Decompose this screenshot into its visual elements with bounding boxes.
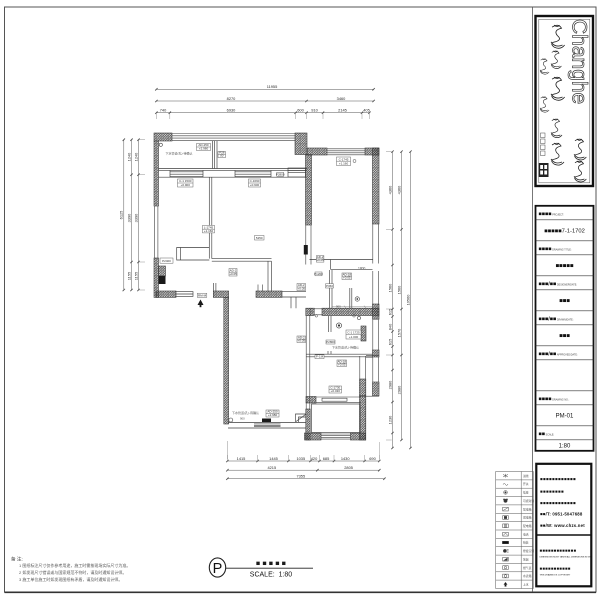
svg-text:P-1M: P-1M [316,355,324,359]
svg-text:2805: 2805 [344,465,353,470]
svg-text:P360: P360 [326,284,333,288]
svg-text:+0.900: +0.900 [250,183,260,187]
svg-text:900: 900 [336,305,341,309]
svg-text:1560: 1560 [396,285,401,294]
svg-text:3390: 3390 [126,213,131,222]
svg-text:615: 615 [387,309,392,316]
svg-text:2145: 2145 [338,108,347,113]
svg-text:■■/W: www.chzs.net: ■■/W: www.chzs.net [540,523,585,528]
svg-text:1560: 1560 [387,283,392,292]
svg-text:下水管道(孔)-待确认: 下水管道(孔)-待确认 [332,345,359,350]
svg-text:910: 910 [311,108,318,113]
svg-text:P2800: P2800 [326,340,335,344]
svg-text:强电箱: 强电箱 [523,507,532,511]
svg-text:3 施工单位施工时如发现图纸有矛盾，请及时通知设计师。: 3 施工单位施工时如发现图纸有矛盾，请及时通知设计师。 [19,576,122,582]
svg-text:SCALE: 1:80: SCALE: 1:80 [250,572,293,579]
svg-text:4215: 4215 [267,465,276,470]
svg-text:1800: 1800 [358,266,366,270]
svg-text:燃气表: 燃气表 [523,566,532,570]
svg-text:PM-01: PM-01 [556,414,574,420]
svg-text:RM-M: RM-M [198,293,207,297]
svg-text:■■■■■■■■■■■: ■■■■■■■■■■■ [540,566,571,571]
svg-text:■■/T: 0951-5047688: ■■/T: 0951-5047688 [540,512,583,517]
svg-text:1155: 1155 [126,272,131,280]
svg-text:1240: 1240 [126,152,131,161]
svg-text:2980: 2980 [387,380,392,389]
svg-text:插座: 插座 [523,491,529,495]
svg-text:1230: 1230 [387,415,392,424]
svg-text:11955: 11955 [267,84,278,89]
svg-text:P2800: P2800 [276,172,285,176]
svg-text:地漏: 地漏 [523,558,529,562]
svg-text:+0.430: +0.430 [331,389,341,393]
svg-text:4360: 4360 [396,185,401,194]
svg-text:配电箱: 配电箱 [523,524,532,528]
svg-text:1445: 1445 [269,456,278,461]
svg-text:690: 690 [369,456,376,461]
svg-text:进线: 进线 [523,474,529,478]
svg-text:+1.000: +1.000 [349,335,359,339]
svg-text:弱电箱: 弱电箱 [523,516,532,520]
svg-text:+0.05: +0.05 [338,363,346,367]
svg-text:1570: 1570 [396,328,401,337]
svg-text:+2.980: +2.980 [268,413,278,417]
svg-text:■■■■■: ■■■■■ [555,264,573,270]
svg-text:1240: 1240 [133,152,138,161]
svg-text:■■■: ■■■ [559,299,570,305]
svg-text:P1200: P1200 [314,272,323,276]
svg-text:水表箱: 水表箱 [523,574,532,578]
svg-text:1:80: 1:80 [559,444,571,450]
svg-text:+2.980: +2.980 [199,147,209,151]
svg-text:600: 600 [297,108,304,113]
svg-text:上水: 上水 [523,583,529,587]
svg-text:840: 840 [387,323,392,330]
svg-text:+0.05: +0.05 [316,258,324,262]
svg-text:壁挂空调: 壁挂空调 [523,549,534,553]
svg-text:1155: 1155 [133,272,138,280]
svg-text:下水管道(孔)-待确认: 下水管道(孔)-待确认 [232,410,259,415]
svg-text:Changhe: Changhe [568,19,591,104]
svg-text:405: 405 [363,108,370,113]
svg-text:+0.05: +0.05 [343,276,351,280]
svg-text:900: 900 [240,417,245,421]
svg-text:420: 420 [311,456,318,461]
svg-text:740: 740 [160,108,167,113]
svg-text:■■■■■: ■■■■■ [256,561,288,568]
svg-text:电话: 电话 [523,532,529,536]
svg-text:685: 685 [323,456,330,461]
svg-text:DIMENSIONS MUST TAKEN ALL DIME: DIMENSIONS MUST TAKEN ALL DIMENSIONS IN … [540,556,593,559]
svg-text:开关: 开关 [523,482,529,486]
svg-text:THIS DRAWING IS COPYRIGHT: THIS DRAWING IS COPYRIGHT [540,574,571,577]
svg-text:2980: 2980 [396,385,401,394]
svg-text:+0.05: +0.05 [229,272,237,276]
svg-text:■■■: ■■■ [559,334,570,340]
svg-text:10560: 10560 [405,294,410,306]
svg-text:8270: 8270 [227,96,236,101]
svg-text:■■■■■■■■■■■■: ■■■■■■■■■■■■ [540,477,576,482]
svg-text:P: P [213,561,223,577]
svg-text:下水管道(孔)-待确认: 下水管道(孔)-待确认 [166,151,193,156]
svg-text:7355: 7355 [296,474,305,479]
svg-text:+0.05: +0.05 [297,287,305,291]
svg-text:+1.160: +1.160 [339,162,349,166]
svg-text:P2400: P2400 [162,259,171,263]
svg-text:+0.05: +0.05 [297,339,305,343]
svg-text:1415: 1415 [237,456,246,461]
svg-text:4360: 4360 [387,185,392,194]
svg-text:5250: 5250 [256,236,263,240]
svg-text:+1.160: +1.160 [204,229,214,233]
svg-text:■■■■■■■■■■■■: ■■■■■■■■■■■■ [540,501,576,506]
svg-text:备 注:: 备 注: [11,556,23,563]
svg-text:暗装: 暗装 [523,541,529,545]
svg-text:1 图纸标注尺寸仅作参考用途，施工时需按现场实际尺寸为准。: 1 图纸标注尺寸仅作参考用途，施工时需按现场实际尺寸为准。 [19,562,130,568]
svg-text:可视对讲: 可视对讲 [523,499,534,503]
svg-text:2 如发现尺寸错误或与国家规范不符时，请及时通知设计师。: 2 如发现尺寸错误或与国家规范不符时，请及时通知设计师。 [19,569,126,575]
svg-text:00: 00 [220,154,224,158]
svg-text:6930: 6930 [227,108,236,113]
svg-text:■■■■■■■■■■■■■: ■■■■■■■■■■■■■ [540,548,577,553]
svg-text:3390: 3390 [133,213,138,222]
svg-text:■■■■■■■■: ■■■■■■■■ [540,489,564,494]
svg-text:6125: 6125 [119,211,124,220]
svg-text:615: 615 [387,339,392,346]
svg-text:1035: 1035 [296,456,305,461]
svg-text:3460: 3460 [337,96,346,101]
svg-text:■■■■■7-1-1702: ■■■■■7-1-1702 [544,229,585,235]
svg-text:1430: 1430 [341,456,350,461]
svg-text:+0.900: +0.900 [181,183,191,187]
